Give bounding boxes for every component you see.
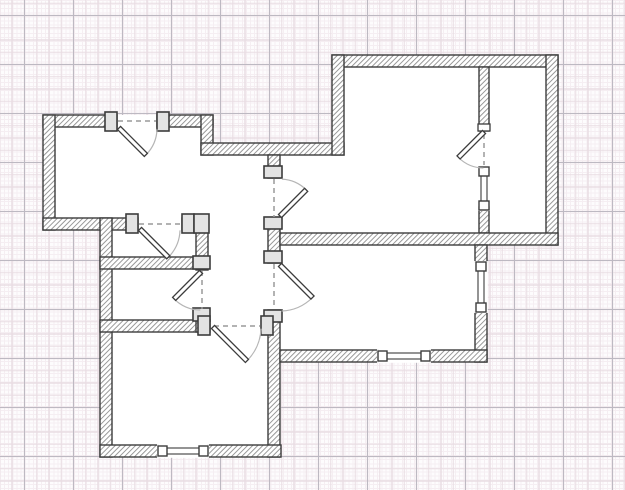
door-jamb [105, 112, 117, 131]
window[interactable] [478, 166, 490, 211]
wall-segment[interactable] [201, 143, 344, 155]
door-jamb [126, 214, 138, 233]
door-jamb [264, 251, 282, 263]
window-glazing [162, 448, 204, 454]
wall-segment[interactable] [546, 55, 558, 245]
wall-segment[interactable] [479, 67, 489, 131]
wall-segment[interactable] [43, 218, 138, 230]
wall-segment[interactable] [208, 445, 281, 457]
door-jamb [182, 214, 194, 233]
wall-segment[interactable] [332, 55, 558, 67]
window[interactable] [474, 261, 488, 313]
room-floor [332, 55, 558, 245]
window-glazing [478, 266, 484, 308]
door-jamb [193, 256, 210, 269]
window-cap [378, 351, 387, 361]
window-cap [199, 446, 208, 456]
door-jamb [264, 166, 282, 178]
window-cap [476, 303, 486, 312]
door-jamb [264, 217, 282, 229]
window-cap [158, 446, 167, 456]
door-jamb [261, 316, 273, 335]
room-floor [100, 218, 281, 457]
wall-segment[interactable] [475, 245, 487, 262]
window-glazing [382, 353, 426, 359]
window[interactable] [377, 349, 431, 363]
wall-segment[interactable] [332, 55, 344, 155]
wall-segment[interactable] [430, 350, 487, 362]
wall-segment[interactable] [280, 350, 378, 362]
wall-segment[interactable] [280, 233, 558, 245]
wall-end-cap [478, 124, 490, 131]
wall-segment[interactable] [43, 115, 55, 230]
door-jamb [157, 112, 169, 131]
window-cap [479, 201, 489, 210]
floor-plan-drawing [0, 0, 625, 490]
door-jamb [194, 214, 209, 233]
window-cap [476, 262, 486, 271]
room-floor [43, 115, 213, 230]
window[interactable] [157, 444, 209, 458]
wall-segment[interactable] [100, 257, 196, 269]
plan-canvas [0, 0, 625, 490]
wall-segment[interactable] [100, 218, 112, 457]
wall-segment[interactable] [100, 445, 158, 457]
window-cap [421, 351, 430, 361]
room-floor [268, 245, 487, 362]
door-jamb [198, 316, 210, 335]
